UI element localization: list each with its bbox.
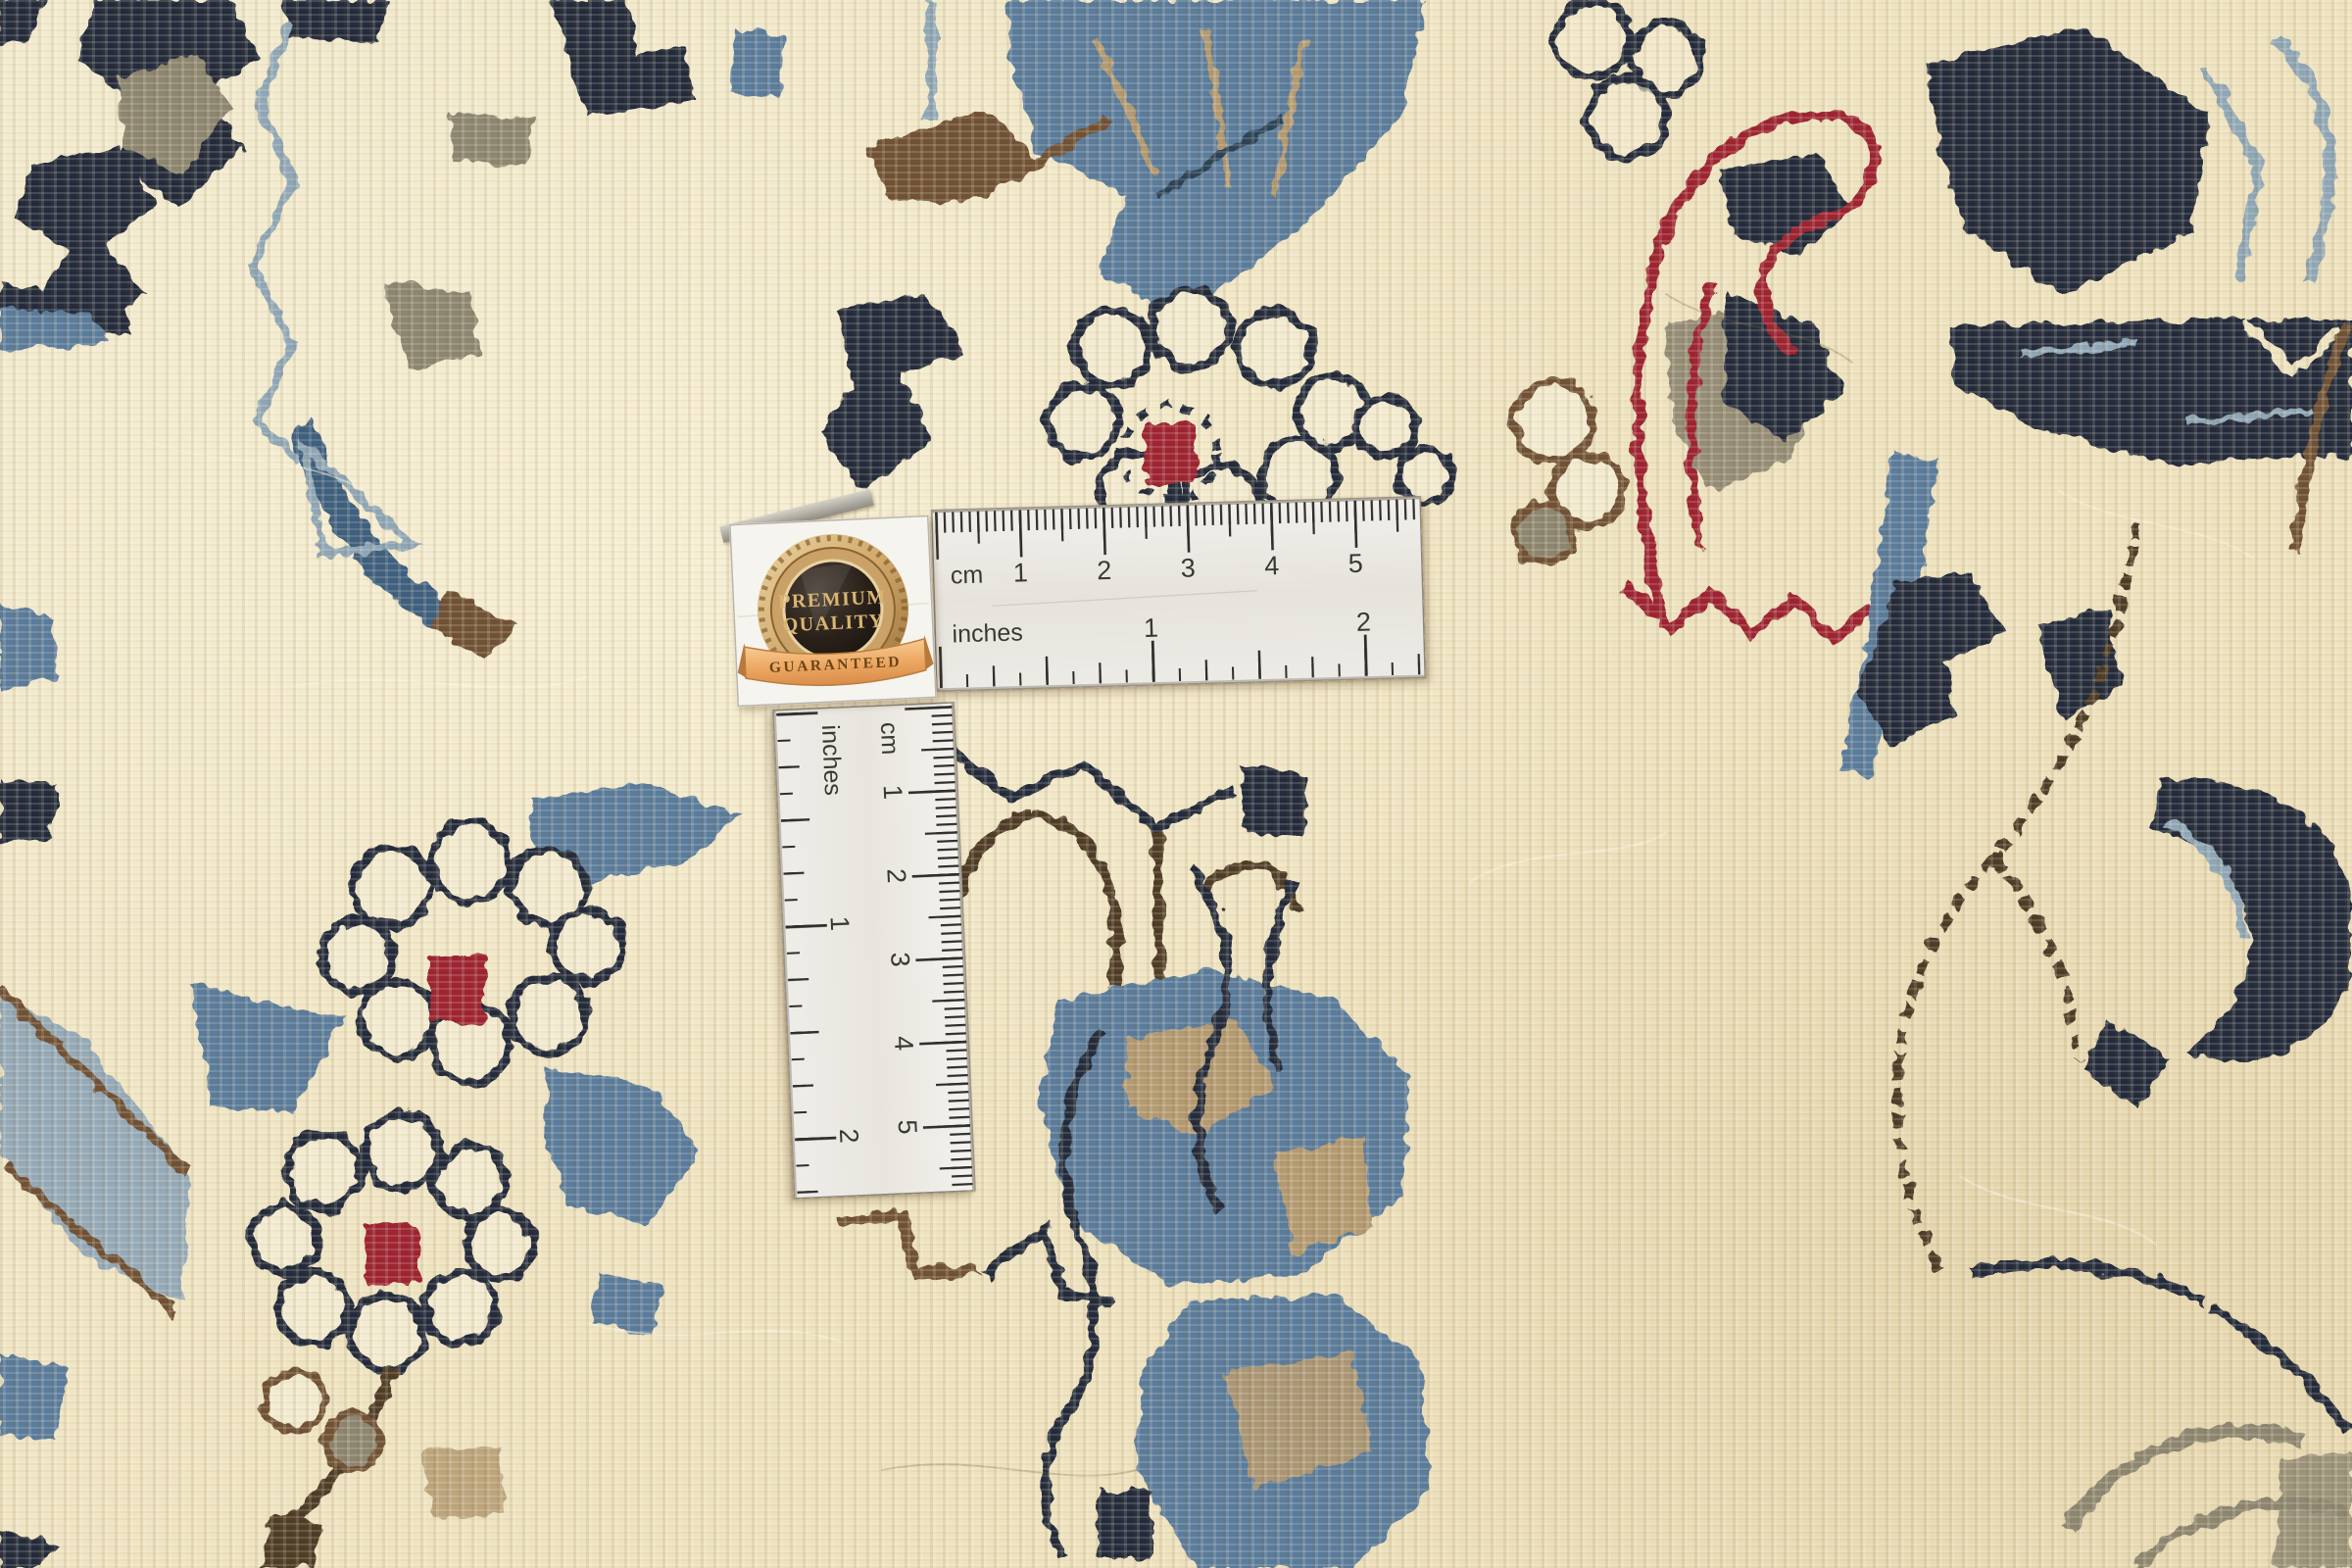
motif-topright-navy-leaves [1840, 27, 2352, 779]
inch-number: 2 [834, 1128, 864, 1144]
motif-topright-red-leaf [1514, 2, 1875, 639]
motif-bottommiddle-palmette [950, 813, 1431, 1568]
motif-bottomleft-flowers [191, 784, 740, 1568]
cm-unit-label: cm [875, 721, 904, 756]
inch-number: 2 [1355, 608, 1371, 637]
motif-leftedge-accents [0, 603, 191, 1568]
badge-title-line2: QUALITY [782, 611, 885, 637]
cm-number: 2 [1097, 556, 1112, 585]
inch-number: 1 [1144, 613, 1159, 643]
inch-number: 1 [824, 915, 855, 931]
premium-quality-badge: PREMIUM QUALITY GUARANTEED [729, 514, 937, 707]
cm-number: 1 [878, 784, 908, 800]
cm-number: 4 [889, 1035, 919, 1051]
cm-number: 1 [1012, 558, 1028, 587]
cm-number: 3 [885, 952, 915, 967]
motif-topcenter-accents [451, 0, 937, 165]
inches-unit-label: inches [952, 618, 1023, 648]
motif-topleft-navy-leaves [0, 0, 519, 659]
cm-number: 4 [1264, 551, 1280, 580]
cm-number: 5 [893, 1119, 923, 1135]
cm-number: 2 [881, 868, 911, 884]
ruler-horizontal: cm 1 2 3 4 5 inches 1 2 [931, 496, 1426, 692]
cm-unit-label: cm [951, 562, 984, 590]
ruler-vertical: cm 1 2 3 4 5 inches 1 2 [772, 702, 976, 1200]
cm-number: 5 [1347, 549, 1363, 578]
carpet-pattern-illustration [0, 0, 2352, 1568]
carpet-photo-scene: cm 1 2 3 4 5 inches 1 2 [0, 0, 2352, 1568]
inches-unit-label: inches [816, 724, 847, 796]
cm-number: 3 [1180, 553, 1196, 582]
motif-bottomright-curls [1970, 1264, 2352, 1568]
